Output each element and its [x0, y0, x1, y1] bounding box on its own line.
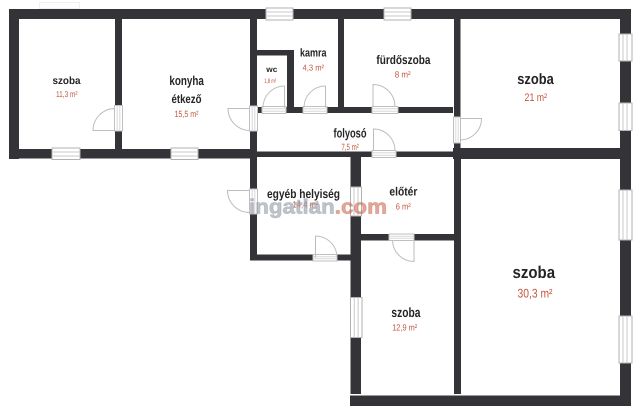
svg-text:szoba: szoba: [391, 305, 420, 320]
svg-text:wc: wc: [265, 65, 278, 74]
svg-text:15,5 m²: 15,5 m²: [175, 109, 199, 119]
svg-text:folyosó: folyosó: [334, 126, 367, 141]
svg-text:konyha: konyha: [169, 73, 204, 88]
svg-text:12,9 m²: 12,9 m²: [392, 323, 417, 333]
svg-text:étkező: étkező: [172, 92, 202, 106]
svg-text:30,3 m²: 30,3 m²: [518, 287, 553, 301]
svg-text:fürdőszoba: fürdőszoba: [376, 53, 431, 67]
svg-text:8 m²: 8 m²: [395, 69, 411, 79]
svg-text:6 m²: 6 m²: [396, 201, 411, 211]
svg-text:szoba: szoba: [513, 263, 556, 282]
svg-text:szoba: szoba: [517, 71, 554, 88]
svg-text:előtér: előtér: [389, 185, 417, 199]
svg-text:kamra: kamra: [300, 47, 327, 59]
svg-text:7,5 m²: 7,5 m²: [341, 142, 359, 152]
svg-text:11,3 m²: 11,3 m²: [56, 89, 78, 99]
svg-text:21 m²: 21 m²: [525, 92, 548, 104]
svg-text:4,3 m²: 4,3 m²: [303, 63, 325, 73]
svg-text:1,8 m²: 1,8 m²: [264, 78, 277, 85]
svg-text:ingatlan.com: ingatlan.com: [249, 196, 387, 219]
svg-text:szoba: szoba: [53, 75, 81, 87]
